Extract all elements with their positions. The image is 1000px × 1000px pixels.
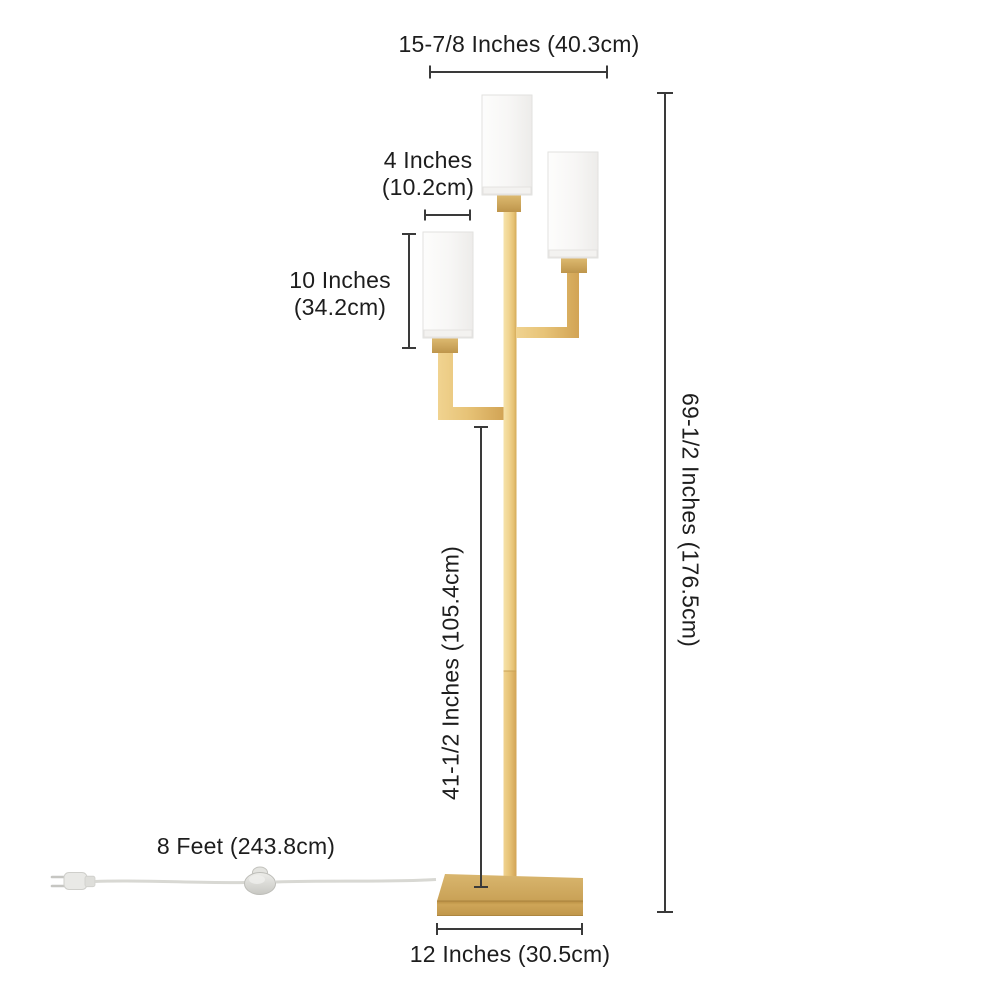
left-shade [423,232,473,338]
label-shade-height: 10 Inches (34.2cm) [289,267,391,321]
dim-line-total-height [657,93,673,912]
dim-line-top-width [430,66,607,79]
lamp-base [437,874,583,916]
label-shade-width-inches: 4 Inches [382,147,474,174]
dim-line-shade-height [402,234,416,348]
label-pole-height: 41-1/2 Inches (105.4cm) [438,546,465,800]
foot-switch [245,867,276,895]
label-shade-width: 4 Inches (10.2cm) [382,147,474,201]
middle-socket [497,195,521,212]
label-shade-width-cm: (10.2cm) [382,174,474,201]
middle-shade [482,95,532,195]
label-cord-length: 8 Feet (243.8cm) [157,833,335,860]
left-arm [438,353,504,420]
product-dimension-diagram: 15-7/8 Inches (40.3cm) 4 Inches (10.2cm)… [0,0,1000,1000]
power-plug-icon [52,873,95,890]
floor-lamp-illustration [0,0,1000,1000]
dim-line-base-width [437,923,582,935]
left-socket [432,338,458,353]
lamp-pole-lower [504,671,517,883]
label-shade-height-cm: (34.2cm) [289,294,391,321]
label-shade-height-inches: 10 Inches [289,267,391,294]
right-socket [561,258,587,273]
lamp-pole-upper [504,212,517,671]
dim-line-shade-width [425,210,470,221]
label-base-width: 12 Inches (30.5cm) [410,941,610,968]
right-arm [516,272,579,338]
label-top-width: 15-7/8 Inches (40.3cm) [399,31,640,58]
dim-line-pole-height [474,427,488,887]
label-total-height: 69-1/2 Inches (176.5cm) [677,393,704,647]
power-cord [52,867,436,895]
right-shade [548,152,598,258]
